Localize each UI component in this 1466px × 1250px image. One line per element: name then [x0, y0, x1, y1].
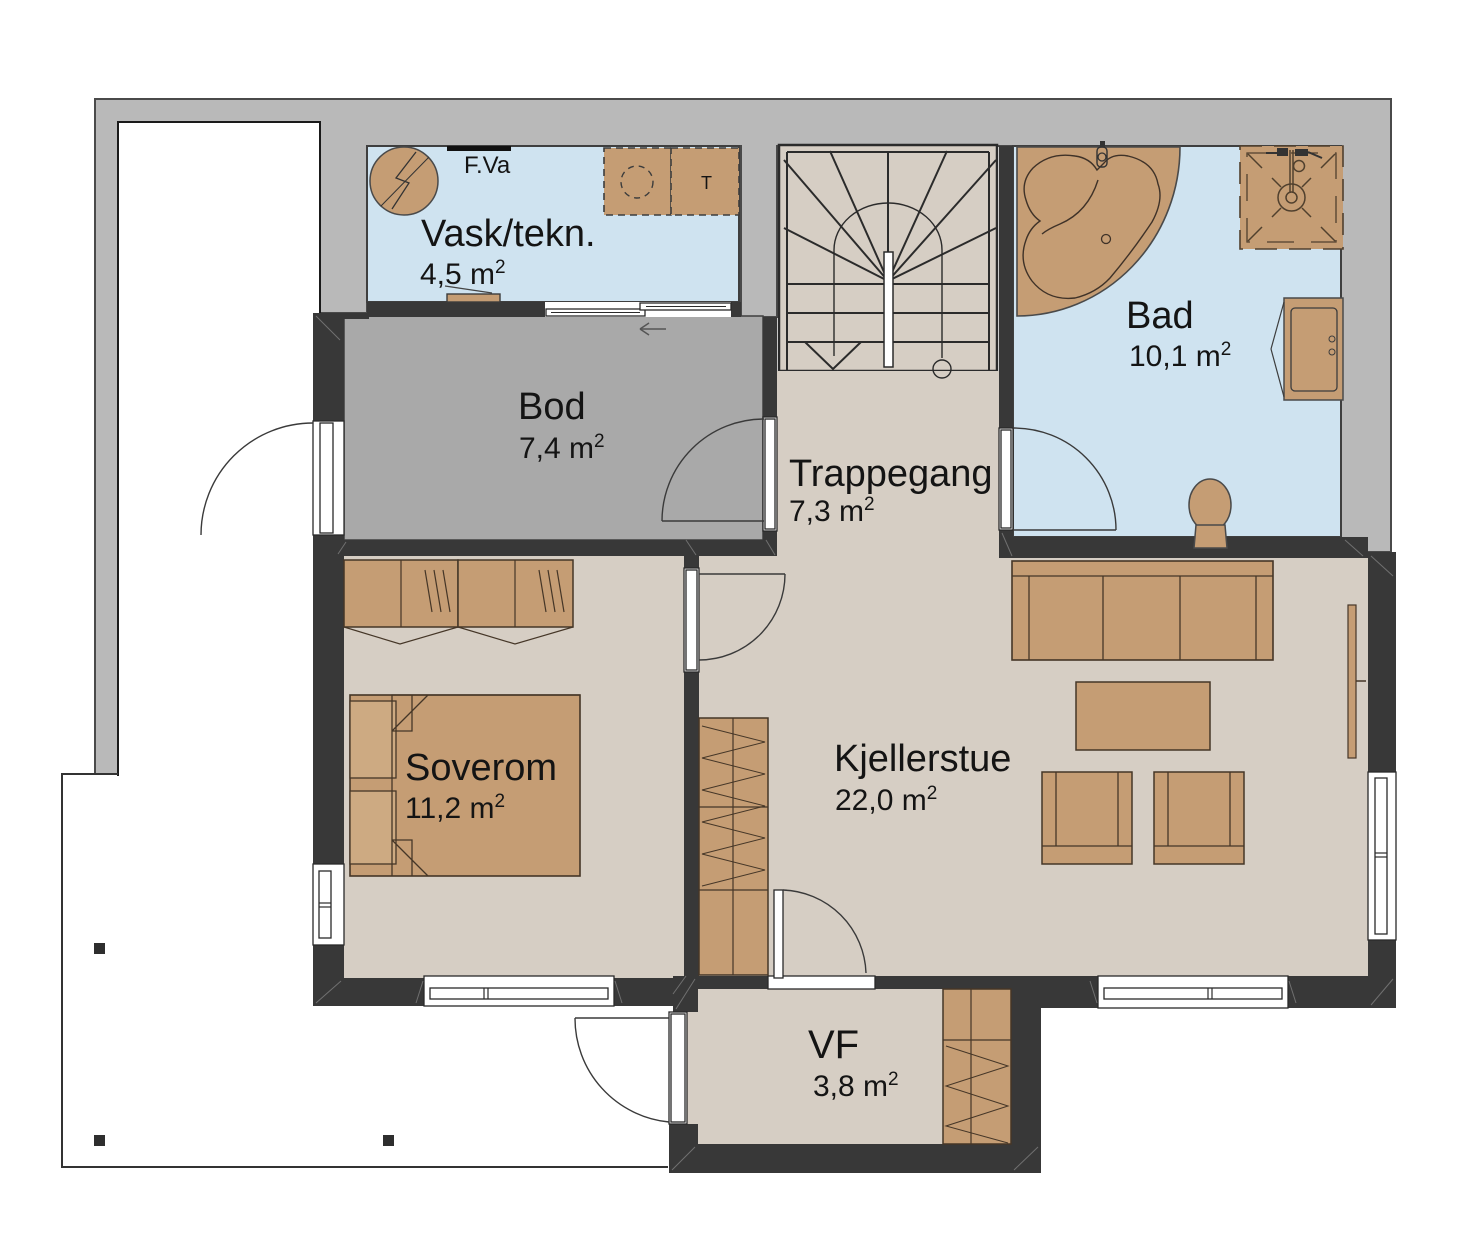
svg-text:Trappegang: Trappegang	[789, 453, 993, 495]
svg-text:Vask/tekn.: Vask/tekn.	[421, 213, 596, 255]
svg-text:Kjellerstue: Kjellerstue	[834, 738, 1011, 780]
svg-text:10,1 m2: 10,1 m2	[1129, 339, 1231, 373]
svg-text:7,3 m2: 7,3 m2	[789, 494, 875, 528]
svg-text:Soverom: Soverom	[405, 747, 557, 789]
svg-text:3,8 m2: 3,8 m2	[813, 1069, 899, 1103]
svg-text:VF: VF	[808, 1023, 859, 1067]
svg-text:F.Va: F.Va	[464, 152, 511, 179]
svg-text:T: T	[701, 173, 712, 193]
svg-text:7,4 m2: 7,4 m2	[519, 431, 605, 465]
svg-text:Bod: Bod	[518, 386, 586, 428]
svg-text:Bad: Bad	[1126, 295, 1194, 337]
svg-text:4,5 m2: 4,5 m2	[420, 257, 506, 291]
svg-text:22,0 m2: 22,0 m2	[835, 783, 937, 817]
svg-text:11,2 m2: 11,2 m2	[405, 791, 505, 825]
